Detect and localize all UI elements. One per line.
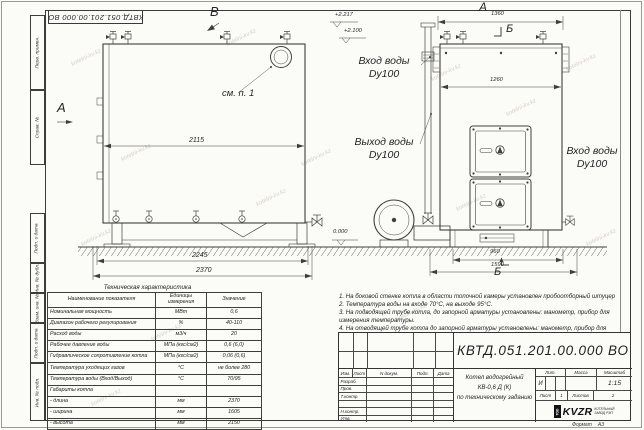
- spec-cell: - ширина: [48, 407, 156, 418]
- dimension-lines: [93, 16, 577, 280]
- spec-cell: Рабочее давление воды: [48, 341, 156, 352]
- dim-1360: 1360: [491, 12, 504, 18]
- spec-cell: МВт: [156, 308, 207, 319]
- sheet-value: 1: [556, 391, 568, 400]
- see-item-note: см. п. 1: [222, 89, 254, 99]
- table-row: Рабочее давление водыМПа (кгс/см2)0,6 (6…: [48, 341, 262, 352]
- sign-row-label: Пров.: [339, 386, 367, 393]
- spec-cell: 70/95: [207, 374, 262, 385]
- spec-cell: 0,6 (6,0): [207, 341, 262, 352]
- table-row: Расход водым3/ч20: [48, 330, 262, 341]
- document-number-cell: КВТД.051.201.00.000 ВО: [454, 333, 632, 369]
- spec-cell: Температура воды (Вход/Выход): [48, 374, 156, 385]
- spec-cell: 1605: [207, 407, 262, 418]
- spec-cell: 2150: [207, 418, 262, 429]
- spec-cell: 20: [207, 330, 262, 341]
- sheet-label: Лист: [536, 391, 556, 400]
- mass-value: [566, 377, 597, 390]
- spec-cell: Гидравлическое сопротивление котла: [48, 352, 156, 363]
- boiler-front-view: [433, 27, 574, 265]
- water-inlet-dn: Dy100: [556, 158, 628, 171]
- spec-cell: 0,06 (0,6): [207, 352, 262, 363]
- spec-cell: - длина: [48, 396, 156, 407]
- product-name-line: КВ-0,6 Д (К): [454, 383, 535, 393]
- water-outlet-text: Выход воды: [344, 136, 424, 149]
- table-row: - ширинамм1605: [48, 407, 262, 418]
- fan-outlet-duct: [414, 226, 450, 240]
- spec-cell: Номинальная мощность: [48, 308, 156, 319]
- dim-2115: 2115: [189, 137, 204, 144]
- water-inlet-label-right: Вход воды Dy100: [556, 145, 628, 171]
- company-logo-text: KVZR: [563, 406, 593, 418]
- view-label-a-right: А: [479, 1, 487, 13]
- view-arrows: [57, 23, 219, 124]
- spec-header: Единицы измерения: [156, 293, 207, 308]
- spec-cell: м3/ч: [156, 330, 207, 341]
- product-name-line: Котел водогрейный: [454, 373, 535, 383]
- table-header-row: Наименование показателя Единицы измерени…: [48, 293, 262, 308]
- spec-header: Значение: [207, 293, 262, 308]
- view-label-a: А: [57, 101, 66, 114]
- spec-table-title: Техническая характеристика: [47, 284, 248, 291]
- spec-cell: Расход воды: [48, 330, 156, 341]
- sign-row-label: Н.контр.: [339, 408, 367, 415]
- water-inlet-text: Вход воды: [344, 55, 424, 68]
- title-block: КВТД.051.201.00.000 ВО Изм. Лист N докум…: [338, 332, 631, 421]
- signature-columns: Изм. Лист N докум. Подп. Дата Разраб. Пр…: [339, 369, 454, 422]
- spec-cell: Температура уходящих газов: [48, 363, 156, 374]
- table-row: Гидравлическое сопротивление котлаМПа (к…: [48, 352, 262, 363]
- sheets-value: 2: [594, 391, 632, 400]
- view-label-v: В: [210, 5, 219, 18]
- lit-header: Лит.: [536, 369, 566, 376]
- spec-cell: Габариты котла: [48, 385, 156, 396]
- water-inlet-dn: Dy100: [344, 68, 424, 81]
- dim-2370: 2370: [196, 267, 212, 274]
- note-line: 2. Температура воды на входе 70°С, на вы…: [339, 301, 629, 309]
- spec-cell: МПа (кгс/см2): [156, 352, 207, 363]
- sign-row-label: Утв.: [339, 416, 367, 423]
- table-row: Диапазон рабочего регулирования%40-110: [48, 319, 262, 330]
- sign-row-label: Т.контр.: [339, 393, 367, 400]
- table-row: - длинамм2370: [48, 396, 262, 407]
- spec-cell: °С: [156, 374, 207, 385]
- water-outlet-dn: Dy100: [344, 149, 424, 162]
- format-label: Формат: [572, 422, 592, 428]
- sign-row-label: Разраб.: [339, 378, 367, 385]
- company-sub-line: ЗАВОД РЭП: [594, 412, 614, 416]
- scale-value: 1:15: [597, 377, 632, 390]
- company-prefix: ТОО: [555, 408, 559, 415]
- spec-table: Наименование показателя Единицы измерени…: [47, 292, 262, 430]
- spec-cell: Диапазон рабочего регулирования: [48, 319, 156, 330]
- ground-hatch: [78, 247, 607, 256]
- format-note: ФорматА3: [545, 422, 631, 428]
- lower-furnace-door: [470, 179, 531, 230]
- revision-grid: [339, 333, 454, 369]
- spec-cell: 2370: [207, 396, 262, 407]
- product-name-cell: Котел водогрейный КВ-0,6 Д (К) по технич…: [454, 369, 536, 422]
- company-logo: ТОО KVZR КОТЕЛЬНЫЙ ЗАВОД РЭП: [536, 401, 632, 422]
- fan: [374, 200, 414, 247]
- section-label-b-top: Б: [506, 24, 513, 35]
- document-number: КВТД.051.201.00.000 ВО: [457, 343, 629, 358]
- table-row: - высотамм2150: [48, 418, 262, 429]
- rev-header: N докум.: [367, 369, 413, 377]
- elevation-2217: +2.217: [335, 13, 353, 19]
- upper-furnace-door: [470, 126, 531, 177]
- note-line: 1. На боковой стенке котла в области топ…: [339, 293, 629, 301]
- spec-cell: [156, 385, 207, 396]
- section-label-b-bottom: Б: [494, 267, 501, 278]
- dim-1260: 1260: [490, 78, 503, 84]
- table-row: Номинальная мощностьМВт0,6: [48, 308, 262, 319]
- spec-cell: не более 280: [207, 363, 262, 374]
- product-name-line: по техническому заданию: [454, 393, 535, 403]
- spec-cell: 0,6: [207, 308, 262, 319]
- spec-cell: мм: [156, 396, 207, 407]
- spec-cell: МПа (кгс/см2): [156, 341, 207, 352]
- boiler-base: [450, 230, 548, 247]
- rev-header: Подп.: [412, 369, 434, 377]
- table-row: Габариты котла: [48, 385, 262, 396]
- spec-header: Наименование показателя: [48, 293, 156, 308]
- dim-960: 960: [490, 250, 500, 256]
- elevation-2100: +2.100: [344, 29, 362, 35]
- section-mark-b: [494, 27, 501, 36]
- rev-header: Дата: [434, 369, 453, 377]
- table-row: Температура воды (Вход/Выход)°С70/95: [48, 374, 262, 385]
- spec-cell: мм: [156, 418, 207, 429]
- company-prefix-box: ТОО: [554, 405, 561, 418]
- spec-cell: °С: [156, 363, 207, 374]
- format-value: А3: [598, 422, 604, 428]
- dim-2245: 2245: [192, 252, 208, 259]
- rev-header: Изм.: [339, 369, 353, 377]
- sheets-label: Листов: [568, 391, 594, 400]
- spec-cell: - высота: [48, 418, 156, 429]
- lit-value: И: [536, 377, 546, 390]
- water-inlet-label-left: Вход воды Dy100: [344, 55, 424, 81]
- water-outlet-label: Выход воды Dy100: [344, 136, 424, 162]
- drawing-sheet: kotelni-kv.kz kotelni-kv.kz kotelni-kv.k…: [0, 0, 644, 430]
- water-inlet-text: Вход воды: [556, 145, 628, 158]
- spec-cell: %: [156, 319, 207, 330]
- table-row: Температура уходящих газов°Сне более 280: [48, 363, 262, 374]
- scale-header: Масштаб: [597, 369, 632, 376]
- title-block-right: Лит. Масса Масштаб И 1:15 Лист 1 Листов …: [536, 369, 632, 422]
- spec-cell: 40-110: [207, 319, 262, 330]
- note-line: 3. На подводящей трубе котла, до запорно…: [339, 309, 629, 324]
- spec-cell: [207, 385, 262, 396]
- sign-row-label: [339, 401, 367, 408]
- mass-header: Масса: [566, 369, 597, 376]
- rev-header: Лист: [353, 369, 367, 377]
- elevation-zero: 0.000: [333, 230, 348, 236]
- spec-cell: мм: [156, 407, 207, 418]
